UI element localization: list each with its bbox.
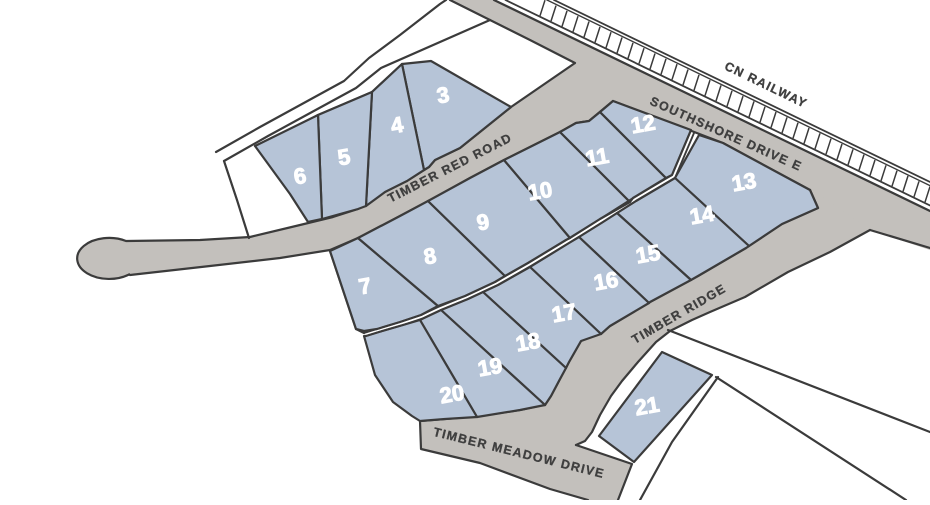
svg-text:11: 11 xyxy=(583,143,610,172)
svg-text:13: 13 xyxy=(730,168,758,197)
svg-text:12: 12 xyxy=(629,110,657,139)
svg-text:19: 19 xyxy=(476,353,504,382)
svg-text:18: 18 xyxy=(514,328,542,357)
svg-text:21: 21 xyxy=(633,392,661,421)
svg-text:17: 17 xyxy=(550,299,578,328)
svg-text:15: 15 xyxy=(634,240,662,269)
svg-text:20: 20 xyxy=(438,380,466,409)
svg-text:16: 16 xyxy=(592,267,620,296)
svg-text:10: 10 xyxy=(526,177,554,206)
svg-text:14: 14 xyxy=(688,200,717,229)
